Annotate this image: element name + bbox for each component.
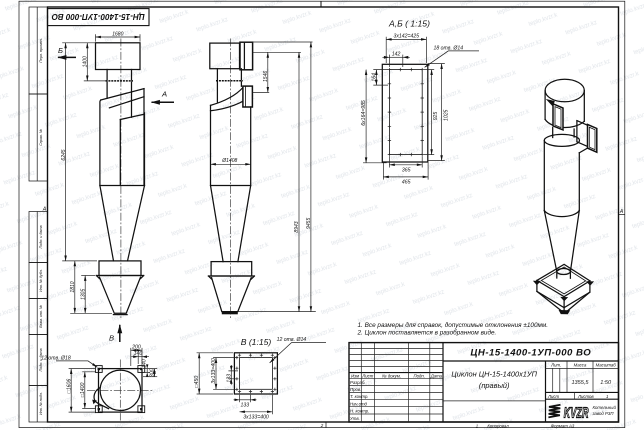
svg-text:2: 2 xyxy=(320,423,324,428)
svg-text:140: 140 xyxy=(134,351,143,357)
svg-text:В (1:15): В (1:15) xyxy=(241,337,272,347)
svg-text:1. Все размеры для справок, до: 1. Все размеры для справок, допустимые о… xyxy=(358,321,549,329)
svg-text:А,Б ( 1:15): А,Б ( 1:15) xyxy=(388,18,430,28)
svg-text:3х142=425: 3х142=425 xyxy=(394,34,420,40)
svg-text:Лист: Лист xyxy=(361,373,373,378)
svg-text:925: 925 xyxy=(433,112,439,121)
svg-text:1025: 1025 xyxy=(443,109,449,121)
svg-text:1546: 1546 xyxy=(263,71,269,82)
svg-text:Разраб.: Разраб. xyxy=(350,380,366,385)
svg-text:(правый): (правый) xyxy=(479,381,510,390)
svg-text:12 отв. Ø18: 12 отв. Ø18 xyxy=(41,355,71,361)
svg-text:□1400: □1400 xyxy=(80,382,86,397)
svg-text:2. Циклон поставляется в разоб: 2. Циклон поставляется в разобранном вид… xyxy=(357,329,497,337)
svg-text:Утв.: Утв. xyxy=(350,416,360,421)
svg-text:1305: 1305 xyxy=(81,289,87,300)
svg-text:1810: 1810 xyxy=(70,281,76,292)
svg-text:164: 164 xyxy=(371,73,377,82)
svg-text:365: 365 xyxy=(402,167,411,173)
svg-text:Т. контр.: Т. контр. xyxy=(350,394,369,399)
svg-text:Изм: Изм xyxy=(351,373,359,378)
svg-text:А: А xyxy=(161,89,167,98)
svg-text:Формат А3: Формат А3 xyxy=(551,423,575,428)
svg-text:9455: 9455 xyxy=(306,218,312,229)
svg-text:133: 133 xyxy=(226,374,232,383)
svg-text:□450: □450 xyxy=(194,376,200,388)
svg-text:ЦН-15-1400-1УП-000 ВО: ЦН-15-1400-1УП-000 ВО xyxy=(470,347,591,358)
svg-text:Лист: Лист xyxy=(547,394,559,399)
svg-text:3х133=400: 3х133=400 xyxy=(243,415,269,421)
svg-text:Копировал: Копировал xyxy=(487,423,509,428)
svg-text:завод РЗП: завод РЗП xyxy=(592,411,615,416)
svg-text:3х133=400: 3х133=400 xyxy=(211,358,217,384)
svg-text:KVZR: KVZR xyxy=(564,404,589,421)
svg-text:465: 465 xyxy=(402,180,411,186)
svg-text:6х164=985: 6х164=985 xyxy=(361,100,367,126)
svg-text:Котельный: Котельный xyxy=(593,405,617,410)
svg-text:1680: 1680 xyxy=(112,31,123,37)
svg-text:Инв. № подл.: Инв. № подл. xyxy=(39,392,43,415)
svg-text:Нач.отд: Нач.отд xyxy=(350,401,368,406)
svg-text:А: А xyxy=(619,209,624,215)
svg-text:Циклон ЦН-15-1400х1УП: Циклон ЦН-15-1400х1УП xyxy=(451,369,537,378)
svg-text:Масса: Масса xyxy=(574,363,587,368)
svg-text:1400: 1400 xyxy=(83,56,89,67)
svg-text:142: 142 xyxy=(392,51,401,57)
svg-text:Дата: Дата xyxy=(430,373,443,378)
svg-text:Подп. и дата: Подп. и дата xyxy=(39,225,43,248)
svg-text:300: 300 xyxy=(149,368,155,377)
svg-text:Листов: Листов xyxy=(577,394,594,399)
svg-text:Ø1408: Ø1408 xyxy=(221,158,237,164)
svg-text:8943: 8943 xyxy=(294,221,300,232)
svg-text:1355,5: 1355,5 xyxy=(571,380,589,386)
svg-text:Инв. № дубл.: Инв. № дубл. xyxy=(39,269,43,292)
svg-text:6245: 6245 xyxy=(61,149,67,160)
svg-text:200: 200 xyxy=(131,344,141,350)
svg-text:Б: Б xyxy=(58,46,63,55)
svg-text:Пров.: Пров. xyxy=(350,387,361,392)
svg-text:133: 133 xyxy=(241,402,250,408)
svg-text:Взам. инв. №: Взам. инв. № xyxy=(39,305,43,328)
svg-text:1:50: 1:50 xyxy=(600,380,612,386)
svg-text:Лит.: Лит. xyxy=(550,363,561,368)
svg-text:В: В xyxy=(109,333,114,342)
svg-text:Н. контр.: Н. контр. xyxy=(350,409,369,414)
svg-text:№ докум.: № докум. xyxy=(382,373,401,378)
svg-text:ЦН-15-1400-1УП-000 ВО: ЦН-15-1400-1УП-000 ВО xyxy=(51,12,144,22)
svg-text:□1606: □1606 xyxy=(66,379,72,394)
svg-text:140: 140 xyxy=(142,359,148,368)
svg-text:Масштаб: Масштаб xyxy=(596,363,617,368)
svg-text:Справ. №: Справ. № xyxy=(39,129,43,146)
svg-text:Подп.: Подп. xyxy=(413,373,424,378)
svg-text:Перв. примен.: Перв. примен. xyxy=(39,38,43,63)
